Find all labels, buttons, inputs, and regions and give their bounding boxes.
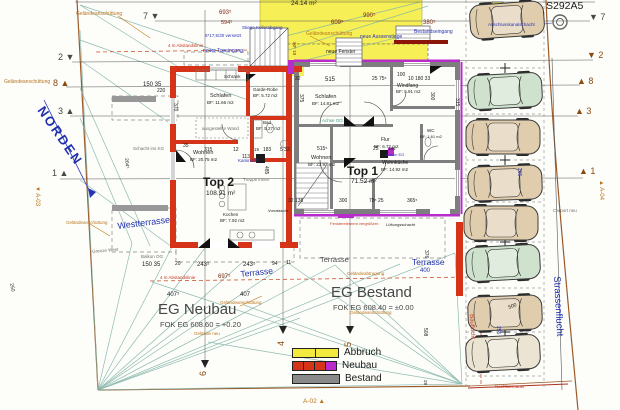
dim-90-10: 90⁵ 10 xyxy=(291,42,296,55)
room-wc: WC xyxy=(427,129,435,134)
dim-693: 693⁵ xyxy=(219,10,232,16)
dim-12-mid: 12 xyxy=(233,148,239,153)
lbl-treppe-innen: Treppe innen xyxy=(243,178,269,183)
lbl-gelaendeanschuettung-4: Geländeanschüttung xyxy=(66,221,108,226)
section-ref-a04: ▲ A-04 xyxy=(598,180,604,200)
balkon-og-bar xyxy=(112,96,156,102)
dim-485: 485 xyxy=(263,166,268,174)
room-garderobe-area: BF: 5.72 m2 xyxy=(253,94,278,99)
legend-color-cell xyxy=(325,361,337,371)
stairs-kellerabgang xyxy=(250,28,288,66)
room-wohnen-top2-area: BF: 20.75 m2 xyxy=(190,158,217,163)
lbl-carport-neu: Carport neu xyxy=(553,209,577,214)
room-bad: Bad xyxy=(263,121,271,126)
dim-25-75: 25 75⁵ xyxy=(372,77,387,82)
dim-315-wall: 315 xyxy=(454,98,459,106)
room-wohnen-top2: Wohnen xyxy=(193,151,213,157)
room-schlafen-top2: Schlafen xyxy=(210,94,231,100)
room-flur: Flur xyxy=(381,138,390,143)
room-wc-area: BF: 1.61 m2 xyxy=(420,135,442,139)
lbl-gelaendeanschuettung-1: Geländeanschüttung xyxy=(76,12,122,17)
legend-label-abbruch: Abbruch xyxy=(344,347,381,358)
unit-top1: Top 1 xyxy=(347,165,378,178)
axis-right-2: ▼ 2 xyxy=(587,51,603,60)
unit-top2: Top 2 xyxy=(203,176,234,189)
dim-375: 375 xyxy=(298,94,303,102)
dim-185: 185 xyxy=(388,147,396,152)
legend-color-cell xyxy=(315,348,339,358)
title-eg-neubau: EG Neubau xyxy=(158,302,236,318)
dim-20-bot: 20 xyxy=(175,262,181,267)
room-garderobe: Garde-Robe xyxy=(253,88,278,93)
car-green xyxy=(467,70,543,112)
car-tan xyxy=(469,0,545,42)
room-wohnkueche-area: BF: 14.92 m2 xyxy=(381,168,408,173)
parked-cars xyxy=(464,0,545,374)
dim-32: 32 xyxy=(295,77,301,82)
car-tan xyxy=(467,293,542,334)
lbl-stiege-kellerabgang: Stiege Kellerabgang xyxy=(242,26,283,31)
lbl-strassenflucht: Strassenflucht xyxy=(551,276,564,337)
dim-32-138: 32 138 xyxy=(288,199,303,204)
lbl-gelaendeanschuettung-6: Geländeanschüttung xyxy=(350,311,392,316)
lbl-kamin-eg-top1: Kamin EG xyxy=(386,153,404,157)
legend-row-abbruch: Abbruch xyxy=(293,346,382,359)
plan-legend: Abbruch Neubau Bestand xyxy=(293,346,382,385)
dim-515-mid: 515⁵ xyxy=(317,147,327,152)
legend-label-bestand: Bestand xyxy=(345,373,382,384)
lbl-bauflucht: Bauflucht xyxy=(468,314,476,339)
dim-400: 400 xyxy=(420,268,430,274)
dim-5-33: 5 33 xyxy=(280,148,290,153)
lbl-abstandslinie-1: 4 m Abstandslinie xyxy=(168,44,203,49)
dim-250: 250 xyxy=(8,283,15,292)
lbl-gelaende-neu: Gelände neu xyxy=(194,332,220,337)
dim-220: 220 xyxy=(157,89,165,94)
dim-365: 365⁵ xyxy=(407,199,417,204)
section-ref-a03: ▼ A-03 xyxy=(34,186,40,206)
dim-100: 100 xyxy=(397,73,405,78)
dim-25-mid: 25 xyxy=(373,147,379,152)
dim-150-35-bot: 150 35 xyxy=(142,262,160,268)
dim-407-2: 407 xyxy=(240,292,250,298)
legend-color-cell xyxy=(292,374,340,384)
dim-697: 697⁵ xyxy=(218,274,231,280)
lbl-gelaendeabtragung: Geländeabtragung xyxy=(347,272,384,277)
legend-row-bestand: Bestand xyxy=(293,372,382,385)
dim-609: 609⁵ xyxy=(331,20,344,26)
dim-204: 204⁵ xyxy=(123,158,129,169)
dim-407-1: 407⁵ xyxy=(167,292,180,298)
car-cream xyxy=(465,332,541,374)
dim-265-parking: 265 xyxy=(516,168,521,176)
dim-183: 183 xyxy=(263,148,271,153)
axis-right-7: ▼ 7 xyxy=(589,13,605,22)
sheet-code: S292A5 xyxy=(546,1,583,12)
axis-right-1: ▲ 1 xyxy=(579,167,595,176)
room-schlafen-top1-area: BF: 14.81 m2 xyxy=(312,102,339,107)
lbl-neue-fenster: neue Fenster xyxy=(326,50,355,55)
dim-11: 11 xyxy=(286,261,291,266)
lbl-anschlusskanalschacht: Anschlusskanalschacht xyxy=(488,23,535,28)
title-eg-bestand: EG Bestand xyxy=(331,285,412,301)
balkon-bar-2 xyxy=(112,205,168,211)
dim-35-mid: 35 xyxy=(183,144,189,149)
lbl-neue-aussenstiege: neue Aussenstiege xyxy=(360,35,402,40)
dim-380: 380⁵ xyxy=(423,20,436,26)
dim-area-24-14: 24.14 m² xyxy=(291,1,317,8)
lbl-achse-og: Achse OG xyxy=(322,119,343,124)
dim-594: 594⁵ xyxy=(221,21,232,27)
room-schlafen-top1: Schlafen xyxy=(315,95,336,101)
dim-78-25: 78⁵ 25 xyxy=(369,199,384,204)
lbl-terrasse-mitte: Terrasse xyxy=(320,256,349,264)
axis-left-7: 7 ▼ xyxy=(143,12,159,21)
room-kochen-area: BF: 7.92 m2 xyxy=(220,219,245,224)
dim-255: 255 xyxy=(495,326,500,334)
lbl-vorratsschrank: Vorratsschr. xyxy=(268,209,289,213)
axis-bottom-4: 4 xyxy=(277,341,286,346)
lbl-nachbarmauer: Nachbarmauer xyxy=(495,385,525,390)
axis-right-8: ▲ 8 xyxy=(577,77,593,86)
room-kochen: Kochen xyxy=(223,213,238,218)
axis-bottom-6: 6 xyxy=(199,371,208,376)
dim-990: 990⁵ xyxy=(363,13,376,19)
dim-19: 19 xyxy=(254,148,259,153)
site-plan-sheet: S292A5NORDEN24.14 m²Geländeanschüttung69… xyxy=(0,0,620,410)
legend-swatch-abbruch xyxy=(293,348,339,358)
dim-508: 508 xyxy=(422,328,427,336)
lbl-balkon-og: Balkon OG xyxy=(141,255,163,260)
lbl-bestandseingang: Bestandseingang xyxy=(414,30,453,35)
lbl-ausgestellte-wand: ausgestellte Wand xyxy=(202,127,239,132)
car-tan xyxy=(466,118,540,156)
unit-top1-area: 71.52 m² xyxy=(351,179,377,186)
dim-10-180-33: 10 180 33 xyxy=(408,77,430,82)
lbl-gelaendeanschuettung-2: Geländeanschüttung xyxy=(306,32,352,37)
unit-top2-area: 108.91 m² xyxy=(206,191,235,198)
room-wohnen-top1-area: BF: 23.92 m2 xyxy=(308,163,335,168)
dim-243-1: 243⁵ xyxy=(197,262,210,268)
lbl-abstandslinie-2: 4 m Abstandslinie xyxy=(160,276,195,281)
dim-370: 370 xyxy=(172,103,177,111)
legend-swatch-bestand xyxy=(293,374,340,384)
room-windfang-area: BF: 5.91 m2 xyxy=(396,90,421,95)
room-schlafen-top2-area: BF: 11.66 m2 xyxy=(207,101,234,106)
lbl-lueftungsschacht: Lüftungsschacht xyxy=(386,223,415,227)
room-schrank: Schrank xyxy=(224,75,241,80)
section-ref-a02: A-02 ▲ xyxy=(303,399,325,406)
legend-label-neubau: Neubau xyxy=(342,360,377,371)
title-eg-neubau-fok: FOK EG 608.60 = +0.20 xyxy=(160,321,241,329)
lbl-terrasse-ost: Terrasse xyxy=(412,258,445,267)
lbl-gelaendeanschuettung-3: Geländeanschüttung xyxy=(4,80,50,85)
dim-376: 376 xyxy=(423,250,428,258)
axis-left-2: 2 ▼ xyxy=(58,53,74,62)
axis-left-8: 8 ▲ xyxy=(53,79,69,88)
car-green xyxy=(465,242,541,284)
axis-left-1: 1 ▲ xyxy=(52,169,68,178)
legend-color-cell xyxy=(292,348,316,358)
legend-swatch-neubau xyxy=(293,361,337,371)
dim-28: 28 xyxy=(422,380,427,385)
room-wohnen-top1: Wohnen xyxy=(311,156,331,162)
dim-515-top: 515 xyxy=(325,77,335,83)
legend-row-neubau: Neubau xyxy=(293,359,382,372)
lbl-kamin-eg-top2: Kamin EG xyxy=(238,159,259,164)
car-tan xyxy=(464,204,538,242)
lbl-versetzt: 6*17,5/30 versetzt xyxy=(205,34,241,39)
lbl-fensterelement: Fensterelement vergrößern xyxy=(330,222,378,226)
lbl-neuer-topeingang: neuer Topeingang xyxy=(203,49,243,54)
axis-right-3: ▲ 3 xyxy=(575,107,591,116)
axis-left-3: 3 ▲ xyxy=(58,107,74,116)
car-tan xyxy=(467,163,542,204)
room-bad-area: BF: 5.27 m2 xyxy=(256,127,281,132)
lbl-schacht-ins-kg: Schacht ins KG xyxy=(133,147,164,152)
dim-300-bot: 300 xyxy=(339,199,347,204)
room-wohnkueche: Wohnküche xyxy=(382,161,408,166)
dim-300-wall: 300 xyxy=(429,92,434,100)
